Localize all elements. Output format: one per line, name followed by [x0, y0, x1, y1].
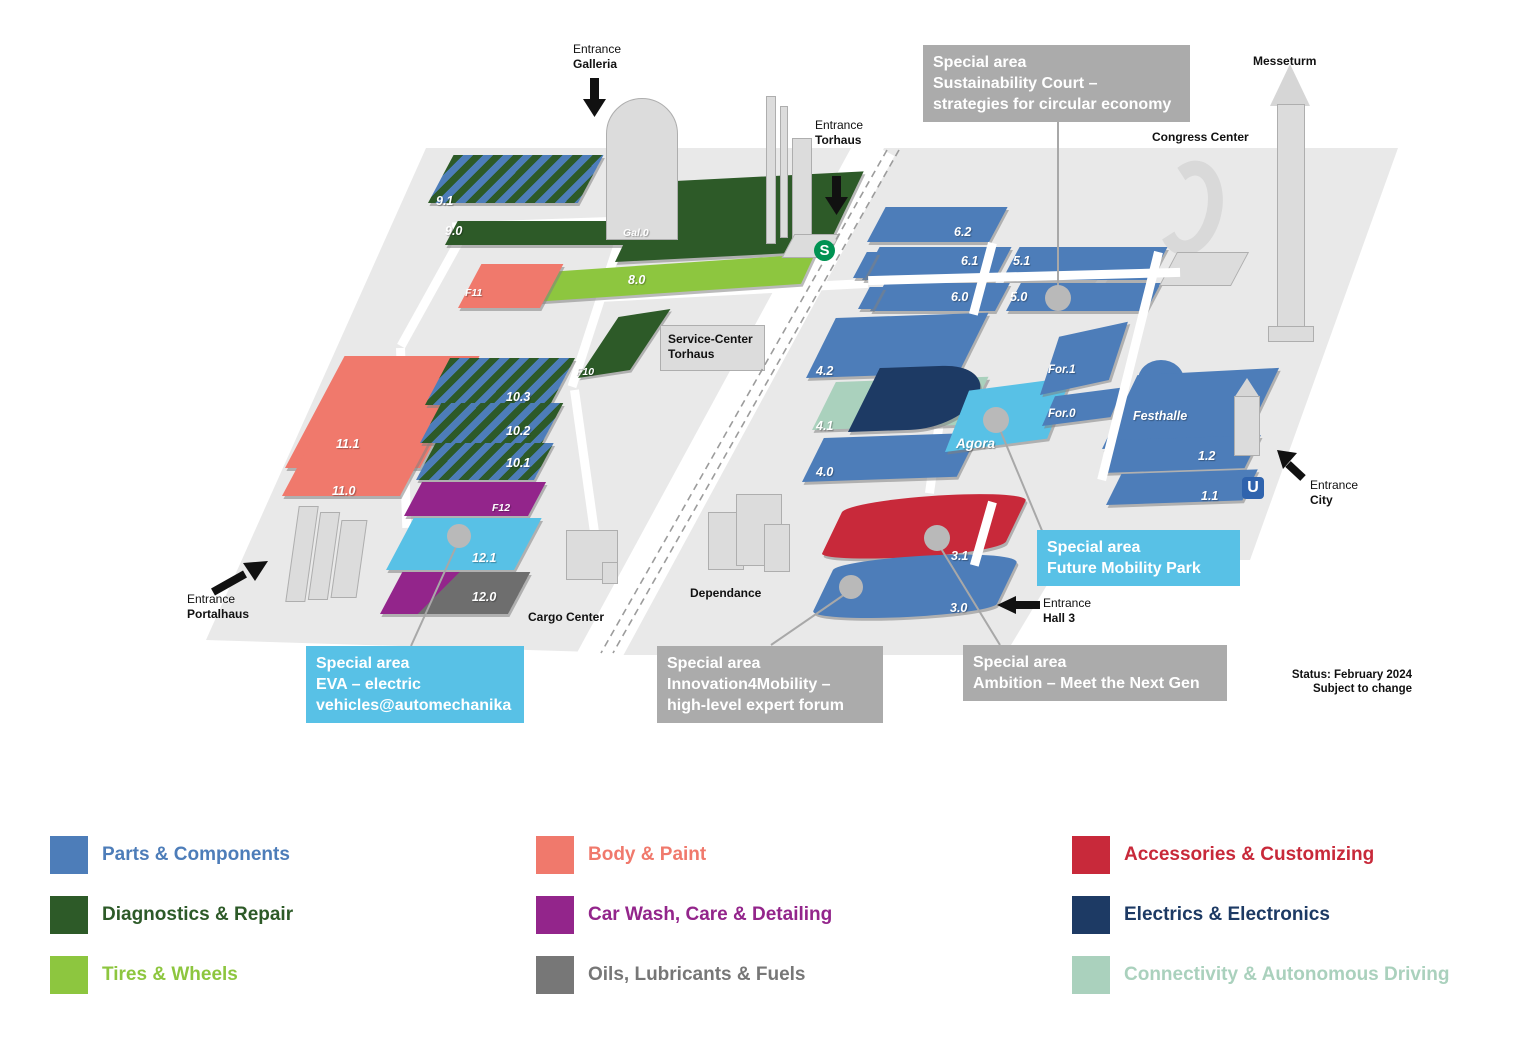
hall-label-10.3: 10.3 — [506, 390, 530, 404]
entrance-galleria-name: Galleria — [573, 57, 621, 72]
legend-swatch — [1072, 896, 1110, 934]
hall-6.2 — [867, 207, 1008, 242]
special-area-title: Special area — [933, 52, 1180, 73]
legend-swatch — [1072, 836, 1110, 874]
messeturm-spire — [1270, 64, 1310, 106]
hall-label-10.1: 10.1 — [506, 456, 530, 470]
service-center-line2: Torhaus — [668, 347, 714, 361]
hall-9.1 — [428, 155, 604, 203]
hall-label-6.1: 6.1 — [961, 254, 978, 268]
special-area-line: strategies for circular economy — [933, 94, 1180, 115]
status-note: Status: February 2024 Subject to change — [1230, 668, 1412, 697]
hall-12.0 — [380, 572, 530, 614]
hall-label-For.1: For.1 — [1048, 364, 1075, 376]
hall-label-5.0: 5.0 — [1010, 290, 1027, 304]
arrow-down-icon — [590, 78, 599, 101]
hall-10.1 — [416, 443, 554, 480]
special-area-title: Special area — [316, 653, 514, 674]
legend-item-electrics-electronics: Electrics & Electronics — [1072, 896, 1330, 934]
entrance-word: Entrance — [187, 592, 235, 606]
special-area-title: Special area — [667, 653, 873, 674]
legend-label: Diagnostics & Repair — [102, 904, 293, 926]
entrance-torhaus-label: Entrance Torhaus — [815, 118, 863, 148]
service-center-line1: Service-Center — [668, 332, 753, 346]
legend-item-car-wash: Car Wash, Care & Detailing — [536, 896, 832, 934]
messeturm-building — [1277, 104, 1305, 328]
legend-label: Tires & Wheels — [102, 964, 238, 986]
entrance-galleria-label: Entrance Galleria — [573, 42, 621, 72]
hall-label-10.2: 10.2 — [506, 424, 530, 438]
hall-10.2 — [420, 403, 563, 443]
legend-swatch — [1072, 956, 1110, 994]
torhaus-building — [780, 106, 788, 238]
special-area-line: EVA – electric — [316, 674, 514, 695]
entrance-portalhaus-name: Portalhaus — [187, 607, 249, 622]
hall-label-11.1: 11.1 — [336, 437, 359, 451]
legend-swatch — [536, 956, 574, 994]
hall-label-8.0: 8.0 — [628, 273, 645, 287]
legend-label: Electrics & Electronics — [1124, 904, 1330, 926]
hall-label-Gal.0: Gal.0 — [623, 227, 649, 239]
hall-label-12.1: 12.1 — [472, 551, 496, 565]
special-area-line: Innovation4Mobility – — [667, 674, 873, 695]
hall-label-4.2: 4.2 — [816, 364, 833, 378]
special-area-line: vehicles@automechanika — [316, 695, 514, 716]
galleria-building — [606, 98, 678, 240]
hall-6.0 — [870, 283, 1010, 311]
entrance-hall3-name: Hall 3 — [1043, 611, 1091, 626]
special-area-innovation4mobility: Special area Innovation4Mobility – high-… — [657, 646, 883, 723]
status-line1: Status: February 2024 — [1292, 669, 1412, 681]
entrance-city-label: Entrance City — [1310, 478, 1358, 508]
legend-label: Connectivity & Autonomous Driving — [1124, 964, 1449, 986]
entrance-city-name: City — [1310, 493, 1358, 508]
ubahn-icon: U — [1242, 477, 1264, 499]
agora-label: Agora — [956, 436, 995, 451]
special-area-line: high-level expert forum — [667, 695, 873, 716]
legend-item-connectivity-autonomous: Connectivity & Autonomous Driving — [1072, 956, 1449, 994]
legend-swatch — [50, 956, 88, 994]
entrance-hall3-label: Entrance Hall 3 — [1043, 596, 1091, 626]
hall-F12 — [404, 482, 546, 516]
hall-label-12.0: 12.0 — [472, 590, 496, 604]
entrance-torhaus-name: Torhaus — [815, 133, 863, 148]
legend-item-body-paint: Body & Paint — [536, 836, 706, 874]
hall-label-6.2: 6.2 — [954, 225, 971, 239]
hall-label-1.2: 1.2 — [1198, 449, 1215, 463]
hall-label-9.0: 9.0 — [445, 224, 462, 238]
hall-label-1.1: 1.1 — [1201, 489, 1218, 503]
kiosk-roof — [1234, 378, 1260, 398]
hall-5.0 — [1006, 283, 1161, 311]
kiosk-building — [1234, 396, 1260, 456]
special-area-sustainability: Special area Sustainability Court – stra… — [923, 45, 1190, 122]
hall-label-6.0: 6.0 — [951, 290, 968, 304]
hall-label-4.0: 4.0 — [816, 465, 833, 479]
hall-1.1 — [1106, 469, 1258, 505]
legend-swatch — [536, 896, 574, 934]
hall-label-3.0: 3.0 — [950, 601, 967, 615]
legend-label: Parts & Components — [102, 844, 290, 866]
special-area-ambition: Special area Ambition – Meet the Next Ge… — [963, 645, 1227, 701]
hall-label-F11: F11 — [465, 287, 482, 299]
status-line2: Subject to change — [1313, 683, 1412, 695]
entrance-portalhaus-label: Entrance Portalhaus — [187, 592, 249, 622]
special-area-eva: Special area EVA – electric vehicles@aut… — [306, 646, 524, 723]
service-center-label: Service-Center Torhaus — [668, 332, 753, 362]
legend-item-parts-components: Parts & Components — [50, 836, 290, 874]
special-area-title: Special area — [973, 652, 1217, 673]
arrow-upleft-icon — [1288, 464, 1303, 478]
entrance-word: Entrance — [1043, 596, 1091, 610]
hall-label-F12: F12 — [492, 502, 510, 514]
legend-swatch — [536, 836, 574, 874]
dependance-label: Dependance — [690, 586, 761, 601]
torhaus-building — [766, 96, 776, 244]
sbahn-icon: S — [814, 240, 835, 261]
special-area-line: Ambition – Meet the Next Gen — [973, 673, 1217, 694]
special-area-future-mobility-park: Special area Future Mobility Park — [1037, 530, 1240, 586]
messeturm-label: Messeturm — [1253, 54, 1316, 69]
messeturm-base — [1268, 326, 1314, 342]
legend-item-accessories-customizing: Accessories & Customizing — [1072, 836, 1374, 874]
legend-label: Accessories & Customizing — [1124, 844, 1374, 866]
legend-swatch — [50, 836, 88, 874]
entrance-word: Entrance — [815, 118, 863, 132]
hall-label-4.1: 4.1 — [816, 419, 833, 433]
hall-label-5.1: 5.1 — [1013, 254, 1030, 268]
legend-item-diagnostics-repair: Diagnostics & Repair — [50, 896, 293, 934]
entrance-word: Entrance — [573, 42, 621, 56]
cargo-center-label: Cargo Center — [528, 610, 604, 625]
hall-label-11.0: 11.0 — [332, 484, 355, 498]
legend-label: Body & Paint — [588, 844, 706, 866]
legend-label: Oils, Lubricants & Fuels — [588, 964, 806, 986]
hall-label-3.1: 3.1 — [951, 549, 968, 563]
dependance-building — [764, 524, 790, 572]
legend-item-tires-wheels: Tires & Wheels — [50, 956, 238, 994]
hall-label-For.0: For.0 — [1048, 408, 1075, 420]
cargo-center-building — [602, 562, 618, 584]
arrow-down-icon — [583, 99, 606, 117]
hall-label-9.1: 9.1 — [436, 194, 453, 208]
fairground-map: 9.1 9.0 Gal.0 8.0 F11 F10 11.1 11.0 10.3… — [0, 0, 1539, 1050]
entrance-word: Entrance — [1310, 478, 1358, 492]
legend-swatch — [50, 896, 88, 934]
hall-label-F10: F10 — [576, 366, 594, 378]
congress-center-label: Congress Center — [1152, 130, 1249, 145]
hall-10.3 — [425, 358, 575, 405]
legend-item-oils-lubricants: Oils, Lubricants & Fuels — [536, 956, 806, 994]
legend-label: Car Wash, Care & Detailing — [588, 904, 832, 926]
special-area-title: Special area — [1047, 537, 1230, 558]
special-area-line: Sustainability Court – — [933, 73, 1180, 94]
festhalle-label: Festhalle — [1133, 409, 1187, 423]
special-area-line: Future Mobility Park — [1047, 558, 1230, 579]
